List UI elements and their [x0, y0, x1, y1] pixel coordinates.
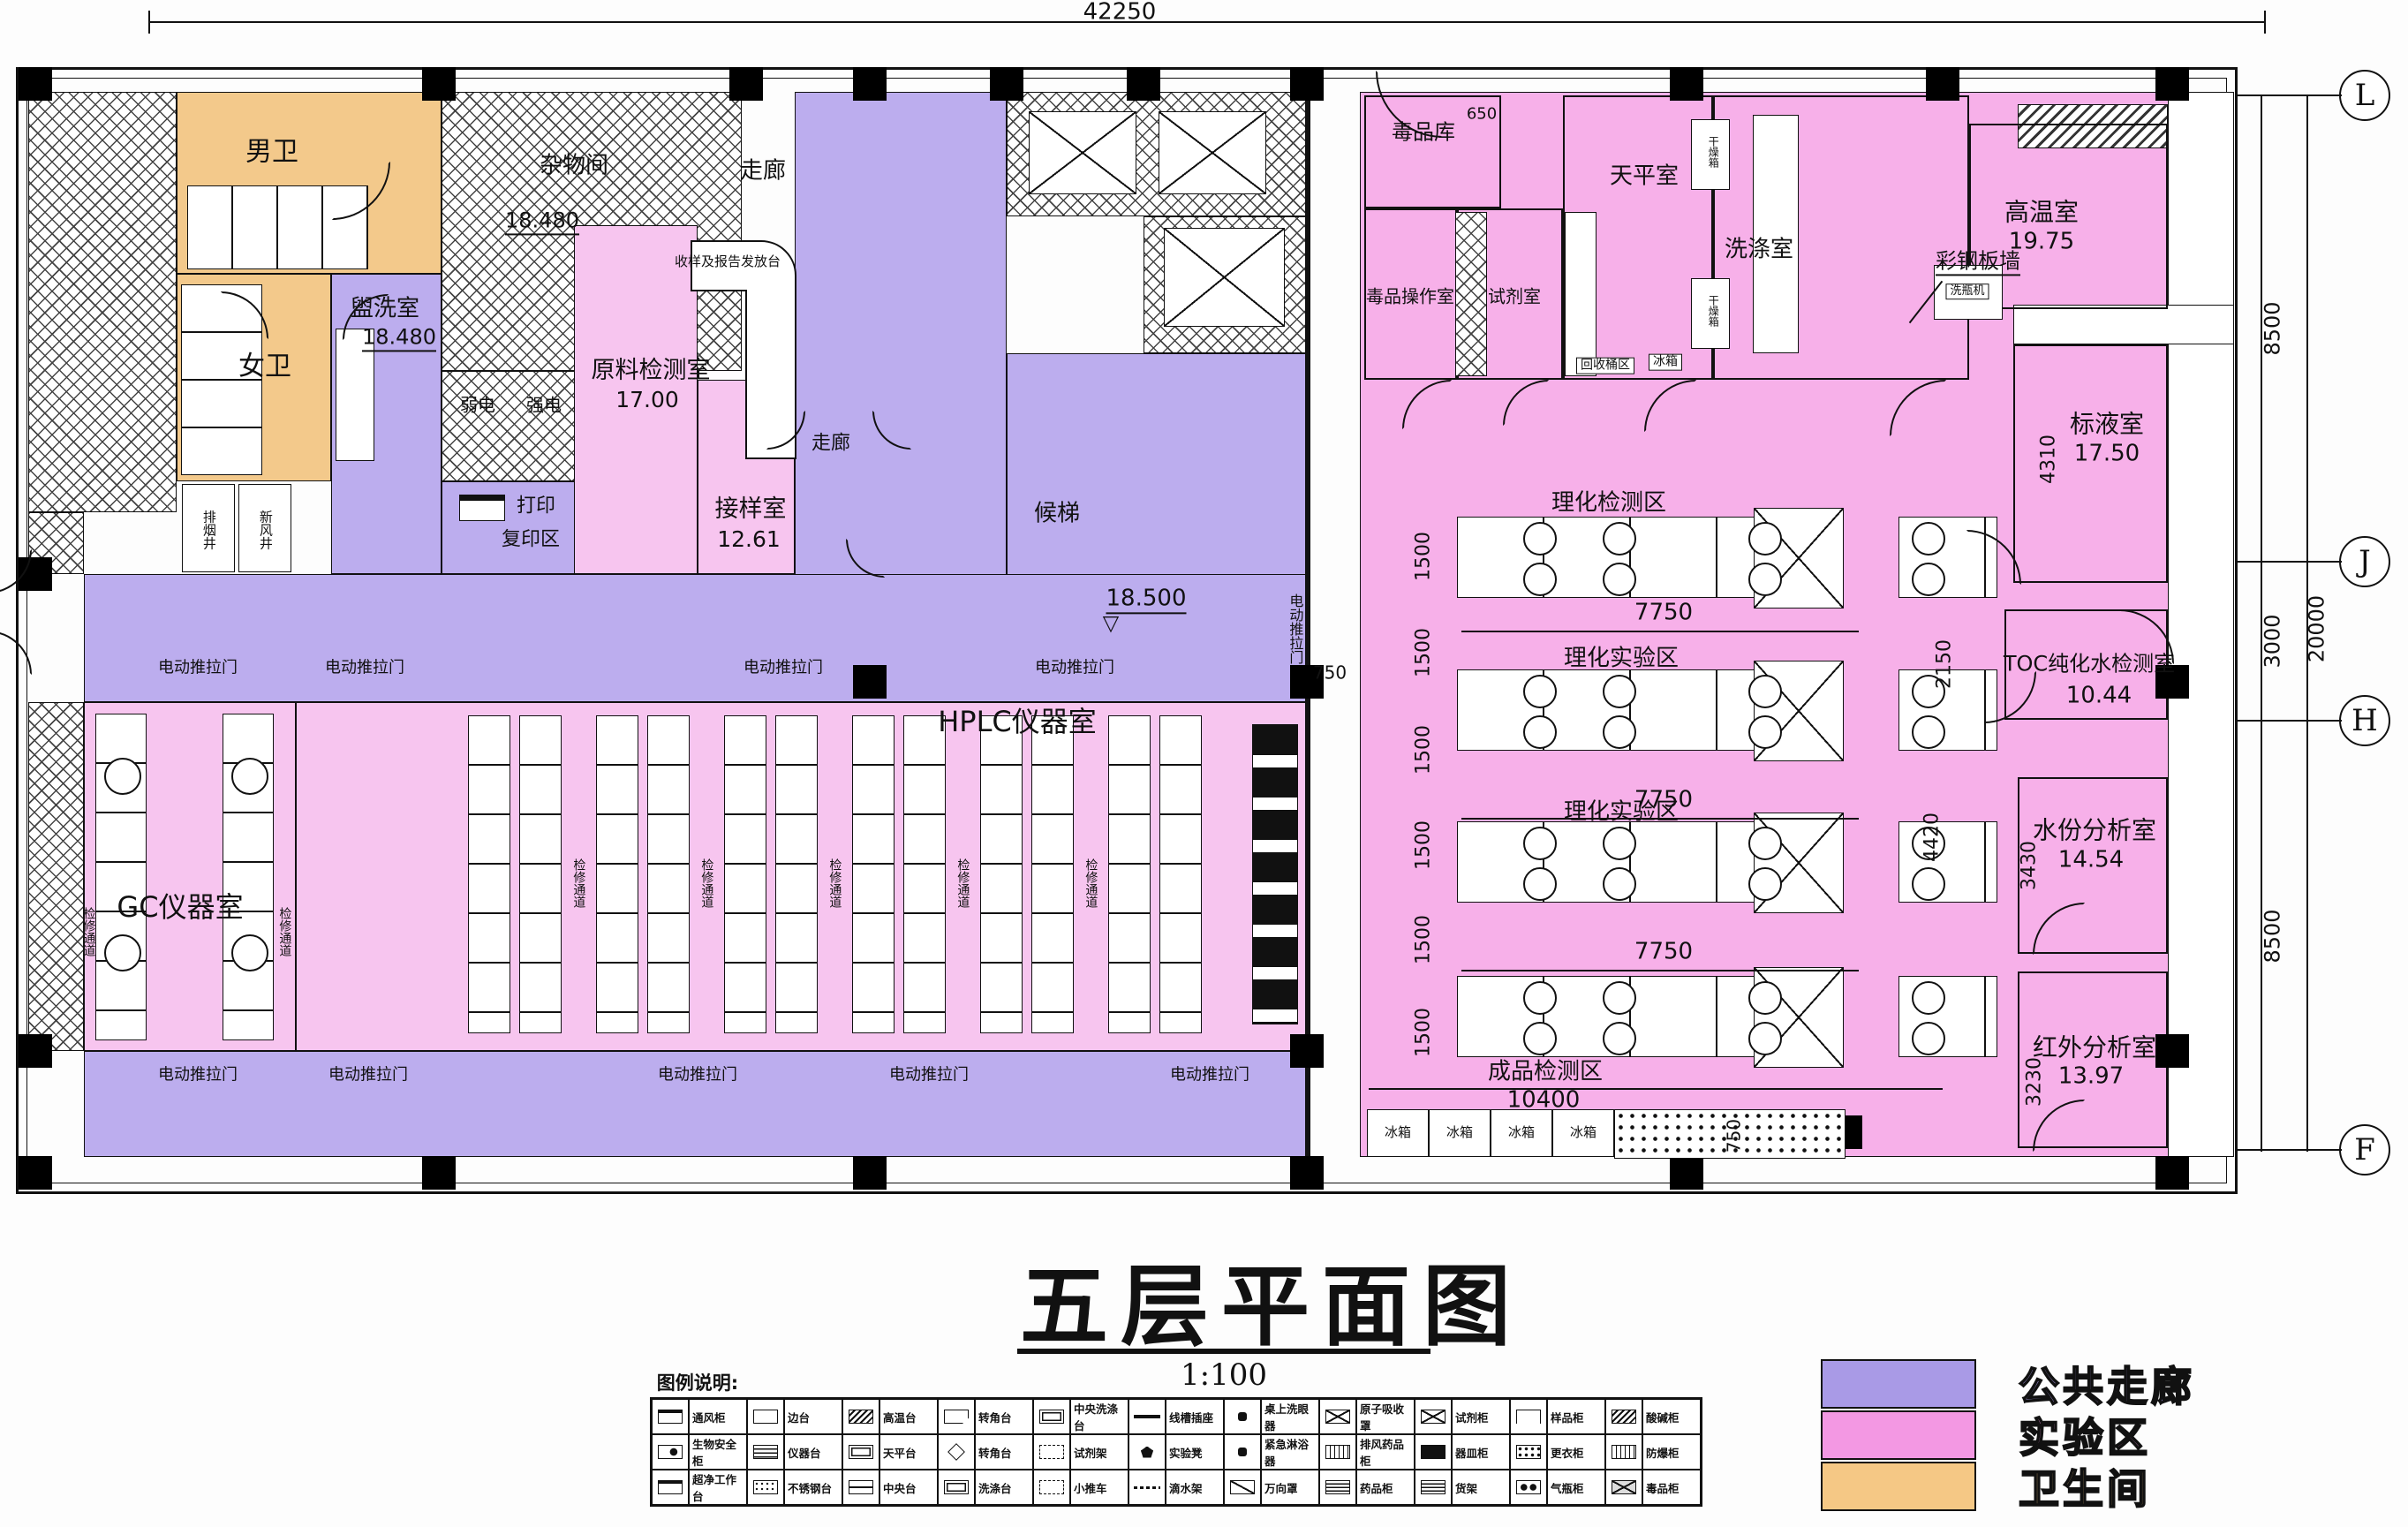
legend-symbol-7-1	[1319, 1434, 1356, 1470]
detail-icon	[658, 1480, 683, 1494]
room-sampling: 接样室	[715, 497, 787, 522]
room-strong-elec: 强电	[526, 397, 562, 415]
lab-row-1-eq-top-1	[1603, 675, 1636, 708]
dim-20000: 20000	[2306, 595, 2328, 662]
gc-equipment-1b	[231, 934, 268, 971]
elevator-car-1	[1159, 111, 1266, 194]
column-5	[1127, 67, 1160, 101]
door-label-b2: 电动推拉门	[328, 1068, 408, 1085]
dim-tick-a-3	[2250, 1149, 2275, 1151]
dim-line-7750-3	[1461, 970, 1859, 971]
elevator-car-0	[1029, 111, 1136, 194]
legend-item-label: 桌上洗眼器	[1261, 1399, 1319, 1434]
shaft-left-bottom	[28, 702, 84, 1051]
circle-icon	[658, 1445, 683, 1459]
level-high-temp: 19.75	[2009, 230, 2074, 253]
lines-icon	[753, 1445, 778, 1459]
printer-icon	[459, 495, 505, 521]
door-label-t2: 电动推拉门	[325, 661, 404, 677]
aisle-5: 检修通道	[828, 858, 842, 908]
dim-750-b: 750	[1725, 1119, 1744, 1153]
diamond-icon	[947, 1443, 965, 1461]
elevator-lobby	[1007, 353, 1307, 576]
lab-row-3-eq-top-1	[1603, 981, 1636, 1015]
grid-letter-H: H	[2351, 703, 2378, 738]
legend-symbol-1-2	[747, 1470, 784, 1505]
gc-equipment-0b	[104, 934, 141, 971]
legend-row-lab: 实验区	[1821, 1406, 2151, 1464]
legend-symbol-0-0	[652, 1399, 689, 1434]
box-fridge: 冰箱	[1649, 354, 1682, 371]
column-4	[990, 67, 1023, 101]
lab-row-3-eq-bot-1	[1603, 1022, 1636, 1055]
level-moisture: 14.54	[2058, 848, 2124, 872]
hplc-bench-2b	[775, 715, 818, 1033]
diagp-icon	[849, 1410, 873, 1424]
legend-symbol-1-0	[747, 1399, 784, 1434]
legend-item-label: 天平台	[879, 1434, 938, 1470]
grid-letter-J: J	[2359, 544, 2371, 579]
counter-label: 收样及报告发放台	[675, 255, 781, 269]
legend-item-label: 洗涤台	[975, 1470, 1033, 1505]
bench-strip-balance	[1753, 115, 1799, 353]
door-label-t1: 电动推拉门	[158, 661, 238, 677]
lab-row-2-eq-top-0	[1523, 827, 1557, 860]
legend-item-label: 气瓶柜	[1547, 1470, 1605, 1505]
column-14	[1670, 1156, 1703, 1190]
legend-symbol-5-1	[1129, 1434, 1166, 1470]
dim-tick-b-1	[2296, 561, 2321, 563]
door-label-b4: 电动推拉门	[889, 1068, 969, 1085]
legend-item-label: 更衣柜	[1547, 1434, 1605, 1470]
legend-symbol-7-2	[1319, 1470, 1356, 1505]
page-title: 五层平面图	[1020, 1235, 1523, 1363]
dim-1500-1: 1500	[1413, 532, 1433, 581]
legend-item-label: 通风柜	[689, 1399, 747, 1434]
room-moisture: 水份分析室	[2033, 817, 2156, 843]
legend-symbol-2-2	[842, 1470, 879, 1505]
soliddot-icon	[1516, 1445, 1541, 1459]
legend-symbol-8-1	[1415, 1434, 1452, 1470]
zone-product-test: 成品检测区	[1488, 1060, 1603, 1084]
box-recycle: 回收桶区	[1576, 358, 1634, 374]
legend-swatch-toilet	[1821, 1462, 1976, 1511]
zone-physchem-test: 理化检测区	[1551, 491, 1666, 515]
lab-row-0-eq-side-t	[1912, 522, 1945, 556]
legend-symbol-6-0	[1224, 1399, 1261, 1434]
stairwell-left	[28, 92, 177, 512]
door-label-t3: 电动推拉门	[744, 661, 823, 677]
lab-row-2-eq-side-b	[1912, 867, 1945, 901]
lab-row-1-eq-top-0	[1523, 675, 1557, 708]
room-std-solution: 标液室	[2070, 411, 2144, 436]
column-11	[422, 1156, 456, 1190]
column-18	[1290, 1034, 1324, 1068]
room-infrared: 红外分析室	[2033, 1034, 2156, 1060]
door-label-vert: 电动推拉门	[1287, 593, 1302, 664]
shaft-air: 新风井	[258, 510, 272, 550]
legend-symbol-5-2	[1129, 1470, 1166, 1505]
legend-swatch-corridor	[1821, 1359, 1976, 1409]
level-toc: 10.44	[2066, 684, 2132, 707]
column-22	[2155, 1034, 2189, 1068]
column-6	[1290, 67, 1324, 101]
door-label-b3: 电动推拉门	[658, 1068, 737, 1085]
elevator-car-2	[1164, 228, 1285, 327]
dim-3230: 3230	[2024, 1057, 2044, 1107]
fume-hood-strip	[1455, 212, 1487, 376]
legend-item-label: 转角台	[975, 1434, 1033, 1470]
dashline-icon	[1134, 1486, 1160, 1489]
lab-row-3-eq-bot-2	[1748, 1022, 1782, 1055]
legend-item-label: 实验凳	[1166, 1434, 1224, 1470]
gc-equipment-1a	[231, 758, 268, 795]
dim-10400: 10400	[1507, 1088, 1581, 1112]
legend-symbol-2-0	[842, 1399, 879, 1434]
corridor-top: 走廊	[740, 159, 786, 183]
legend-symbol-8-0	[1415, 1399, 1452, 1434]
lab-row-1-eq-bot-2	[1748, 715, 1782, 749]
legend-item-label: 不锈钢台	[784, 1470, 842, 1505]
corridor-vertical	[795, 92, 1007, 576]
dim-tick-a-1	[2250, 561, 2275, 563]
room-hplc: HPLC仪器室	[938, 707, 1097, 737]
level-sampling: 12.61	[717, 528, 781, 551]
legend-item-label: 毒品柜	[1642, 1470, 1701, 1505]
grid-letter-F: F	[2354, 1132, 2375, 1168]
grid-bubble-L: L	[2339, 70, 2390, 121]
legend-item-label: 中央台	[879, 1470, 938, 1505]
grid-letter-L: L	[2355, 78, 2375, 113]
column-7	[1670, 67, 1703, 101]
lab-row-0-eq-top-1	[1603, 522, 1636, 556]
diagp-icon	[1612, 1410, 1636, 1424]
legend-item-label: 线槽插座	[1166, 1399, 1224, 1434]
hplc-bench-5a	[1108, 715, 1151, 1033]
door-label-t4: 电动推拉门	[1035, 661, 1114, 677]
aisle-1: 检修通道	[82, 907, 95, 956]
dim-3430: 3430	[2019, 841, 2039, 890]
lab-row-1-eq-top-2	[1748, 675, 1782, 708]
area-print-2: 复印区	[502, 529, 560, 549]
legend-symbol-10-0	[1605, 1399, 1642, 1434]
column-10	[19, 1156, 52, 1190]
lab-row-0-eq-bot-2	[1748, 563, 1782, 596]
dim-3000: 3000	[2261, 614, 2283, 668]
dim-8500-top: 8500	[2261, 301, 2283, 355]
legend-item-label: 超净工作台	[689, 1470, 747, 1505]
dim-1500-2: 1500	[1413, 628, 1433, 677]
dim-tick-b-3	[2296, 1149, 2321, 1151]
column-12	[853, 1156, 887, 1190]
lab-row-0-eq-side-b	[1912, 563, 1945, 596]
dashes-icon	[1039, 1480, 1064, 1494]
column-0	[19, 67, 52, 101]
room-drug-store: 毒品库	[1392, 121, 1455, 143]
dim-7750-1: 7750	[1634, 601, 1693, 624]
lab-row-0-eq-bot-0	[1523, 563, 1557, 596]
aisle-6: 检修通道	[956, 858, 970, 908]
legend-item-label: 试剂架	[1070, 1434, 1129, 1470]
aisle-7: 检修通道	[1084, 858, 1098, 908]
hplc-bench-4a	[980, 715, 1023, 1033]
lab-row-3-eq-bot-0	[1523, 1022, 1557, 1055]
inner-icon	[944, 1480, 969, 1494]
label-steel-wall: 彩钢板墙	[1936, 250, 2020, 276]
hplc-bench-0b	[519, 715, 562, 1033]
fridge-3: 冰箱	[1508, 1126, 1535, 1140]
hplc-bench-1b	[647, 715, 690, 1033]
lab-row-2-eq-bot-0	[1523, 867, 1557, 901]
column-15	[2155, 1156, 2189, 1190]
level-raw: 17.00	[615, 389, 679, 412]
legend-symbol-7-0	[1319, 1399, 1356, 1434]
legend-item-label: 滴水架	[1166, 1470, 1224, 1505]
column-16	[853, 665, 887, 699]
legend-symbol-4-0	[1033, 1399, 1070, 1434]
legend-item-label: 样品柜	[1547, 1399, 1605, 1434]
title-scale: 1:100	[1181, 1360, 1267, 1392]
legend-item-label: 中央洗涤台	[1070, 1399, 1129, 1434]
level-storage: 18.480	[505, 209, 579, 235]
dim-8500-bot: 8500	[2261, 909, 2283, 963]
dotrect-icon	[753, 1480, 778, 1494]
wall-mid-right	[1305, 92, 1310, 1157]
level-washroom: 18.480	[362, 326, 436, 352]
legend-item-label: 高温台	[879, 1399, 938, 1434]
blob-icon	[1238, 1448, 1247, 1456]
legend-item-label: 排风药品柜	[1356, 1434, 1415, 1470]
lab-row-0-eq-bot-1	[1603, 563, 1636, 596]
level-infrared: 13.97	[2058, 1064, 2124, 1088]
legend-label-lab: 实验区	[2019, 1406, 2151, 1464]
aisle-4: 检修通道	[700, 858, 713, 908]
hplc-bench-5b	[1159, 715, 1202, 1033]
legend-table-header: 图例说明:	[657, 1373, 738, 1393]
level-std: 17.50	[2074, 442, 2140, 465]
lobby-elevator: 候梯	[1034, 502, 1080, 525]
room-high-temp: 高温室	[2004, 199, 2079, 224]
lab-row-3-eq-side-b	[1912, 1022, 1945, 1055]
legend-item-label: 仪器台	[784, 1434, 842, 1470]
xbox-icon	[1421, 1410, 1446, 1424]
dim-tick-a-2	[2250, 720, 2275, 722]
label-dryer-1: 干燥箱	[1708, 136, 1719, 168]
room-drug-op: 毒品操作室	[1366, 288, 1454, 306]
fridge-2: 冰箱	[1446, 1126, 1473, 1140]
legend-symbol-9-1	[1510, 1434, 1547, 1470]
stripes-icon	[1325, 1480, 1350, 1494]
top-dim-line	[150, 21, 2266, 23]
hplc-bench-3a	[852, 715, 895, 1033]
legend-symbol-9-0	[1510, 1399, 1547, 1434]
split-icon	[849, 1480, 873, 1494]
grid-bubble-J: J	[2339, 536, 2390, 587]
room-washing: 洗涤室	[1725, 238, 1793, 261]
level-symbol: ▽	[1103, 612, 1119, 634]
legend-row-corridor: 公共走廊	[1821, 1355, 2195, 1413]
legend-label-corridor: 公共走廊	[2019, 1355, 2195, 1413]
bench-strip-reagent	[1565, 212, 1597, 376]
legend-item-label: 转角台	[975, 1399, 1033, 1434]
room-toc: TOC纯化水检测室	[2004, 653, 2175, 675]
fridge-1: 冰箱	[1385, 1126, 1411, 1140]
detail-icon	[658, 1410, 683, 1424]
legend-symbol-9-2	[1510, 1470, 1547, 1505]
hplc-dark-equipment	[1252, 724, 1298, 1024]
column-9	[2155, 67, 2189, 101]
lab-row-2-eq-top-1	[1603, 827, 1636, 860]
legend-symbol-0-2	[652, 1470, 689, 1505]
legend-item-label: 药品柜	[1356, 1470, 1415, 1505]
band-above-std-room	[2013, 305, 2234, 344]
hline-icon	[1134, 1415, 1160, 1418]
legend-item-label: 酸碱柜	[1642, 1399, 1701, 1434]
room-men-toilet: 男卫	[245, 138, 298, 166]
floor-plan-canvas: 五层平面图 1:100 公共走廊 实验区 卫生间 图例说明: 通风柜边台高温台转…	[0, 0, 2408, 1527]
hplc-bench-2a	[724, 715, 766, 1033]
lab-row-0-eq-top-0	[1523, 522, 1557, 556]
legend-item-label: 小推车	[1070, 1470, 1129, 1505]
room-gc: GC仪器室	[117, 893, 243, 923]
dim-750-a: 750	[1313, 664, 1347, 683]
dim-2150: 2150	[1934, 639, 1954, 689]
dim-tick-b-0	[2296, 94, 2321, 96]
lab-row-2-eq-top-2	[1748, 827, 1782, 860]
legend-row-toilet: 卫生间	[1821, 1457, 2151, 1516]
hplc-bench-0a	[468, 715, 510, 1033]
shaft-smoke: 排烟井	[201, 510, 215, 550]
legend-symbol-5-0	[1129, 1399, 1166, 1434]
lab-row-1-eq-bot-0	[1523, 715, 1557, 749]
dim-line-7750-1	[1461, 631, 1859, 632]
blob-icon	[1238, 1412, 1247, 1421]
door-label-b5: 电动推拉门	[1170, 1068, 1249, 1085]
legend-item-label: 试剂柜	[1452, 1399, 1510, 1434]
dim-42250: 42250	[1083, 0, 1157, 24]
lab-row-3-eq-top-2	[1748, 981, 1782, 1015]
grid-bubble-H: H	[2339, 695, 2390, 746]
title-underline	[1017, 1349, 1430, 1354]
xfill-icon	[1612, 1480, 1636, 1494]
dim-650: 650	[1467, 107, 1497, 124]
stripes-icon	[1421, 1480, 1446, 1494]
legend-symbol-6-2	[1224, 1470, 1261, 1505]
plain-icon	[753, 1410, 778, 1424]
corner-icon	[944, 1410, 969, 1424]
dim-1500-4: 1500	[1413, 820, 1433, 870]
dim-4420: 4420	[1921, 813, 1942, 862]
legend-item-label: 器皿柜	[1452, 1434, 1510, 1470]
area-print-1: 打印	[517, 495, 555, 516]
column-1	[422, 67, 456, 101]
lab-row-2-eq-bot-2	[1748, 867, 1782, 901]
legend-symbol-0-1	[652, 1434, 689, 1470]
box-bottle-washer: 洗瓶机	[1945, 283, 1989, 299]
column-8	[1926, 67, 1959, 101]
slash-icon	[1230, 1480, 1255, 1494]
room-women-toilet: 女卫	[238, 352, 291, 381]
legend-symbol-3-1	[938, 1434, 975, 1470]
legend-symbol-3-2	[938, 1470, 975, 1505]
lab-row-2-eq-bot-1	[1603, 867, 1636, 901]
legend-item-label: 货架	[1452, 1470, 1510, 1505]
grid-bubble-F: F	[2339, 1124, 2390, 1175]
aisle-3: 检修通道	[572, 858, 585, 908]
column-20	[19, 1034, 52, 1068]
legend-label-toilet: 卫生间	[2019, 1457, 2151, 1516]
dim-1500-3: 1500	[1413, 725, 1433, 775]
cyl-icon	[1516, 1480, 1541, 1494]
column-2	[729, 67, 763, 101]
lab-row-3-eq-top-0	[1523, 981, 1557, 1015]
legend-symbol-4-1	[1033, 1434, 1070, 1470]
legend-item-label: 原子吸收罩	[1356, 1399, 1415, 1434]
dim-tick-a-0	[2250, 94, 2275, 96]
xbox-icon	[1325, 1410, 1350, 1424]
legend-item-label: 边台	[784, 1399, 842, 1434]
top-dim-tick-l	[148, 11, 150, 34]
corridor-mid: 走廊	[811, 433, 850, 453]
electrical-rooms-zone	[442, 371, 587, 481]
legend-item-label: 防爆柜	[1642, 1434, 1701, 1470]
legend-item-label: 生物安全柜	[689, 1434, 747, 1470]
door-label-b1: 电动推拉门	[158, 1068, 238, 1085]
zone-physchem-lab-1: 理化实验区	[1564, 646, 1679, 670]
aisle-2: 检修通道	[278, 907, 291, 956]
grid-icon	[1325, 1445, 1350, 1459]
legend-symbol-8-2	[1415, 1470, 1452, 1505]
room-raw-material: 原料检测室	[592, 359, 711, 383]
legend-symbol-10-2	[1605, 1470, 1642, 1505]
legend-swatch-lab	[1821, 1410, 1976, 1460]
lab-row-3-eq-side-t	[1912, 981, 1945, 1015]
room-reagent: 试剂室	[1488, 288, 1541, 306]
right-service-corridor	[2168, 92, 2234, 1157]
solid-icon	[1421, 1445, 1446, 1459]
fridge-4: 冰箱	[1570, 1126, 1597, 1140]
dim-7750-3: 7750	[1634, 940, 1693, 964]
room-balance: 天平室	[1610, 164, 1679, 188]
dim-1500-5: 1500	[1413, 915, 1433, 964]
legend-symbol-2-1	[842, 1434, 879, 1470]
legend-symbol-1-1	[747, 1434, 784, 1470]
dim-7750-2: 7750	[1634, 788, 1693, 812]
dim-1500-6: 1500	[1413, 1008, 1433, 1057]
label-dryer-2: 干燥箱	[1708, 295, 1719, 327]
legend-symbol-4-2	[1033, 1470, 1070, 1505]
lab-row-0-eq-top-2	[1748, 522, 1782, 556]
column-3	[853, 67, 887, 101]
hplc-bench-3b	[903, 715, 946, 1033]
inner-icon	[849, 1445, 873, 1459]
legend-symbol-6-1	[1224, 1434, 1261, 1470]
hplc-bench-1a	[596, 715, 638, 1033]
dim-tick-b-2	[2296, 720, 2321, 722]
dim-4310: 4310	[2038, 435, 2058, 484]
lab-row-1-eq-bot-1	[1603, 715, 1636, 749]
lab-row-1-eq-side-b	[1912, 715, 1945, 749]
top-dim-tick-r	[2264, 11, 2266, 34]
open-icon	[1516, 1410, 1541, 1424]
column-13	[1290, 1156, 1324, 1190]
grid-icon	[1612, 1445, 1636, 1459]
room-washroom: 盥洗室	[351, 297, 419, 321]
dim-line-10400	[1369, 1088, 1943, 1090]
legend-table: 通风柜边台高温台转角台中央洗涤台线槽插座桌上洗眼器原子吸收罩试剂柜样品柜酸碱柜生…	[650, 1397, 1702, 1507]
hplc-bench-4b	[1031, 715, 1074, 1033]
inner-icon	[1039, 1410, 1064, 1424]
